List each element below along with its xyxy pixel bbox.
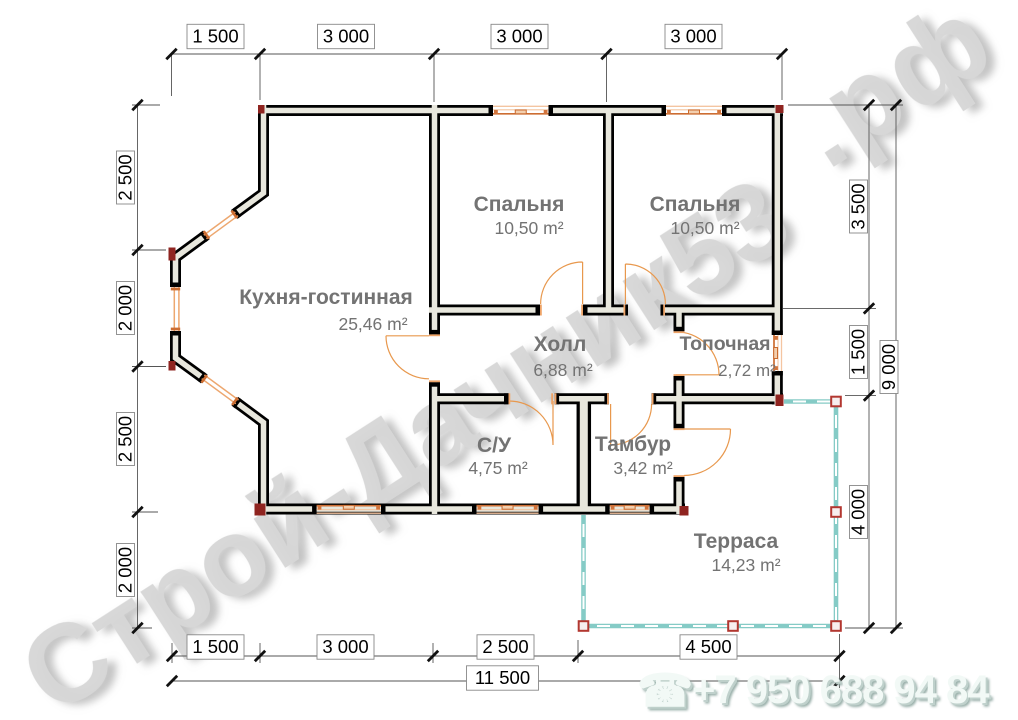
svg-text:☎: ☎ [637,665,693,716]
svg-text:2 500: 2 500 [115,416,136,462]
svg-text:10,50 m²: 10,50 m² [494,218,563,238]
svg-text:Кухня-гостинная: Кухня-гостинная [239,286,413,309]
svg-text:4,75 m²: 4,75 m² [468,458,527,478]
svg-text:3 000: 3 000 [496,26,542,47]
svg-text:2,72 m²: 2,72 m² [718,361,776,380]
svg-text:10,50 m²: 10,50 m² [670,218,739,238]
svg-text:11 500: 11 500 [475,667,530,688]
svg-text:9 000: 9 000 [878,344,899,390]
svg-text:Холл: Холл [534,333,587,356]
svg-text:3 000: 3 000 [670,26,716,47]
svg-text:2 000: 2 000 [115,285,136,331]
svg-text:.рф: .рф [772,0,1013,191]
svg-text:+7 950 688 94 84: +7 950 688 94 84 [692,668,990,712]
svg-text:3,42 m²: 3,42 m² [613,458,672,478]
svg-text:2 500: 2 500 [482,636,528,657]
svg-text:Спальня: Спальня [650,193,741,216]
svg-text:С/У: С/У [477,434,512,457]
svg-text:6,88 m²: 6,88 m² [533,360,592,380]
svg-text:14,23 m²: 14,23 m² [711,555,780,575]
svg-text:4 500: 4 500 [685,636,731,657]
svg-text:Терраса: Терраса [694,530,779,553]
svg-text:3 000: 3 000 [322,636,368,657]
svg-text:4 000: 4 000 [848,489,869,535]
svg-text:Топочная: Топочная [679,333,770,355]
svg-text:Спальня: Спальня [474,193,565,216]
svg-text:3 000: 3 000 [323,26,369,47]
svg-text:2 500: 2 500 [115,154,136,200]
svg-text:1 500: 1 500 [192,26,238,47]
svg-text:25,46 m²: 25,46 m² [338,314,407,334]
svg-text:1 500: 1 500 [192,636,238,657]
svg-text:1 500: 1 500 [848,329,869,375]
svg-text:2 000: 2 000 [115,547,136,593]
svg-text:3 500: 3 500 [848,183,869,229]
svg-text:Тамбур: Тамбур [595,433,671,456]
